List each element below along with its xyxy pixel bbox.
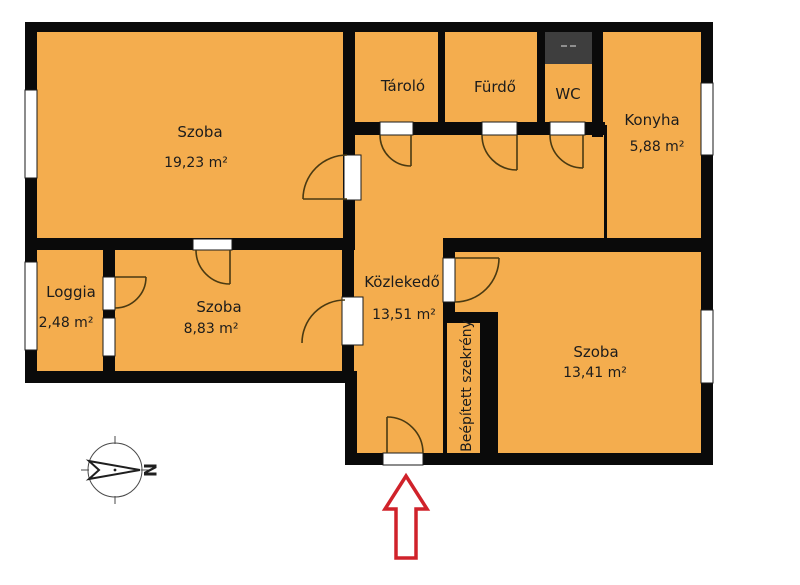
wall-wc-konyha: [592, 32, 603, 137]
door-gap-loggia: [103, 277, 115, 310]
area-szoba-large: 19,23 m²: [164, 155, 228, 171]
room-furdo: [445, 32, 537, 122]
wall-szekreny-right: [480, 323, 498, 453]
wall-szoba-large-bottom: [25, 238, 355, 250]
wall-tarolo-furdo: [438, 32, 445, 135]
label-konyha: Konyha: [624, 111, 679, 129]
door-gap-furdo: [482, 122, 517, 135]
window-szoba-right: [701, 310, 713, 383]
wall-szoba-large-right: [343, 22, 355, 250]
label-furdo: Fürdő: [474, 78, 516, 96]
label-kozlekedo: Közlekedő: [364, 273, 440, 291]
compass-north-label: N: [139, 463, 159, 477]
wall-konyha-bottom: [443, 238, 713, 252]
floorplan-drawing: Szoba 19,23 m² Tároló Fürdő WC Konyha 5,…: [0, 0, 800, 585]
room-loggia: [37, 250, 103, 371]
wall-szekreny-left: [443, 323, 447, 453]
wall-outer-bottom-left: [25, 371, 357, 383]
door-gap-szoba-large: [344, 155, 361, 200]
room-kozlekedo-corridor: [355, 135, 605, 238]
shaft-mark-right: [570, 45, 576, 47]
window-loggia-szoba: [103, 318, 115, 356]
door-gap-tarolo: [380, 122, 413, 135]
window-loggia: [25, 262, 37, 350]
room-kozlekedo-leg: [354, 238, 443, 453]
label-szoba-small: Szoba: [196, 298, 241, 316]
compass: N: [81, 436, 159, 504]
label-tarolo: Tároló: [380, 77, 425, 95]
door-gap-szoba-right: [443, 258, 455, 302]
door-gap-szoba-small-right: [342, 297, 363, 345]
wall-outer-top: [25, 22, 713, 32]
label-wc: WC: [555, 85, 580, 103]
window-szoba-large: [25, 90, 37, 178]
duct-shaft: [544, 32, 592, 64]
floorplan-page: Szoba 19,23 m² Tároló Fürdő WC Konyha 5,…: [0, 0, 800, 585]
area-konyha: 5,88 m²: [630, 139, 685, 155]
entrance-arrow-icon: [385, 476, 427, 558]
door-gap-szoba-small-top: [193, 239, 232, 250]
compass-center-dot: [114, 469, 117, 472]
label-loggia: Loggia: [46, 283, 96, 301]
wall-konyha-partition: [604, 125, 607, 240]
area-szoba-right: 13,41 m²: [563, 365, 627, 381]
label-szoba-right: Szoba: [573, 343, 618, 361]
door-gap-entrance: [383, 453, 423, 465]
wall-hall-left-lower: [345, 383, 357, 458]
label-szoba-large: Szoba: [177, 123, 222, 141]
shaft-mark-left: [561, 45, 567, 47]
area-kozlekedo: 13,51 m²: [372, 307, 436, 323]
door-gap-wc: [550, 122, 585, 135]
area-szoba-small: 8,83 m²: [184, 321, 239, 337]
window-konyha: [701, 83, 713, 155]
wall-furdo-wc: [537, 32, 545, 135]
area-loggia: 2,48 m²: [39, 315, 94, 331]
label-szekreny: Beépített szekrény: [459, 320, 475, 452]
room-konyha: [598, 32, 701, 238]
